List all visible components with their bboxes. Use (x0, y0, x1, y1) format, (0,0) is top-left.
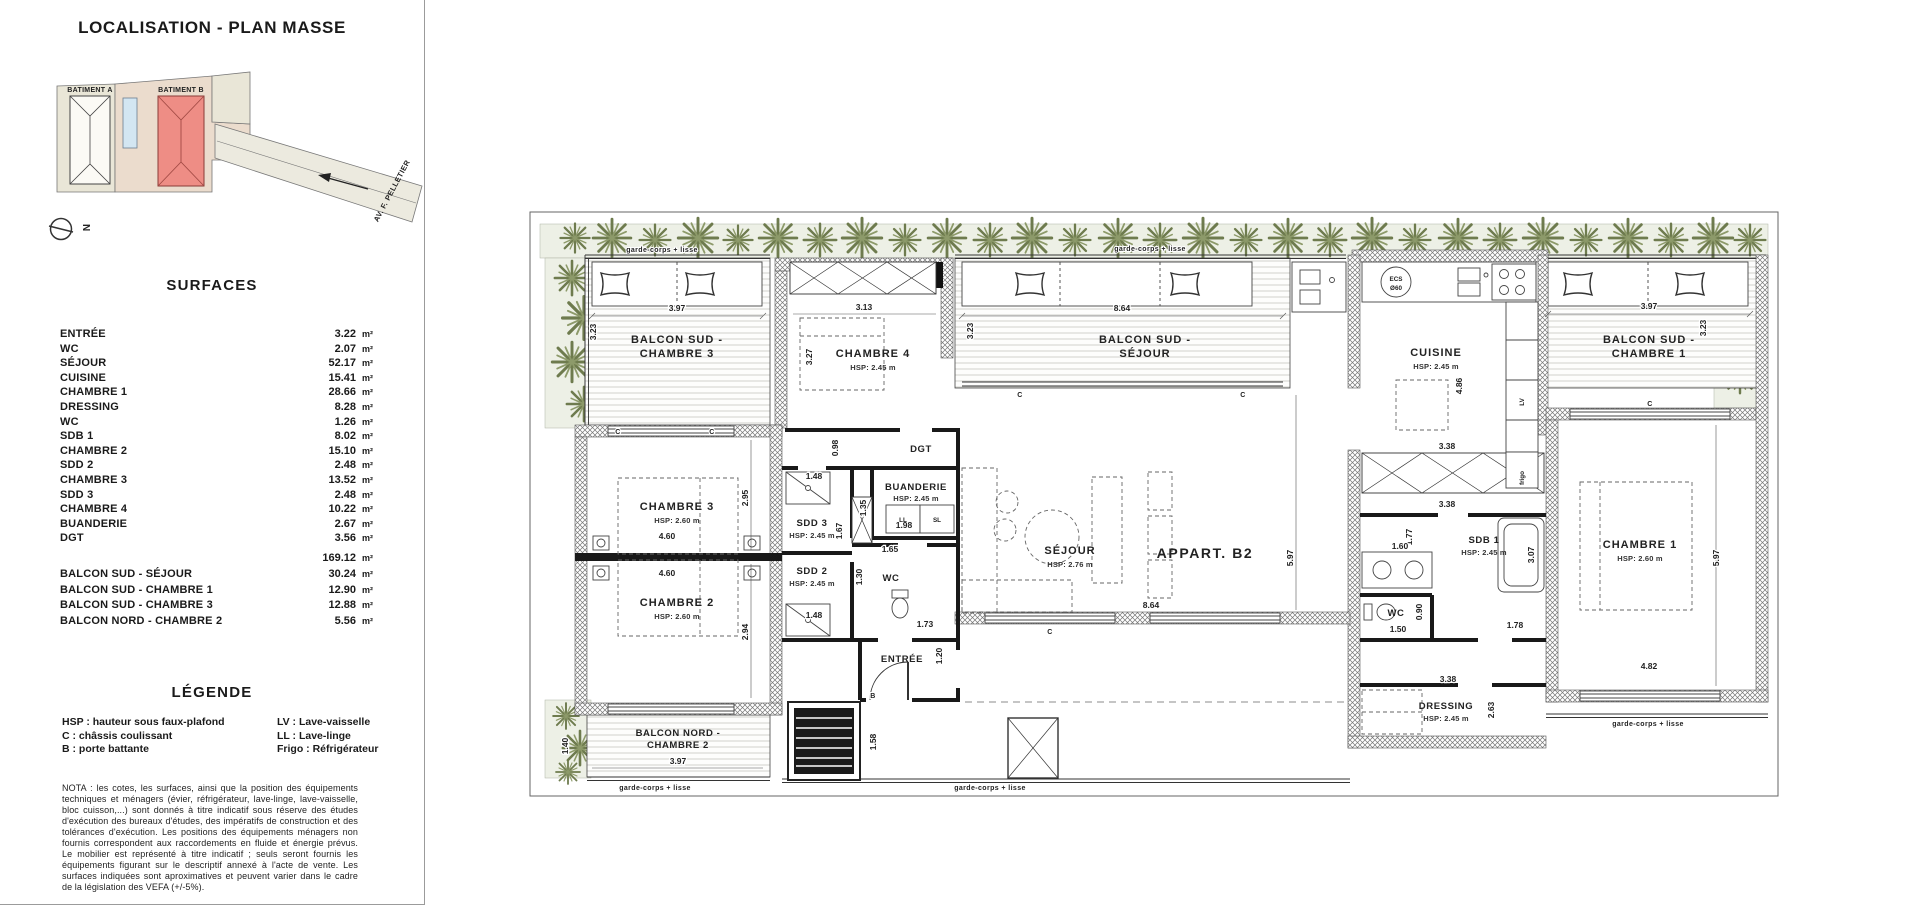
area-unit: m² (356, 614, 388, 630)
room-label: SDD 2 (797, 566, 828, 577)
room-area: 2.48 (312, 488, 356, 503)
dimension: 0.98 (830, 439, 840, 456)
stairwell (788, 702, 860, 780)
table-row: ENTRÉE3.22m² (60, 327, 388, 342)
room-label: CHAMBRE 3 (60, 473, 312, 488)
balcony-label: BALCON SUD - CHAMBRE 3 (60, 598, 312, 614)
room-label: CHAMBRE 2 (647, 740, 709, 751)
area-unit: m² (356, 531, 388, 546)
room-label: BALCON SUD - (631, 334, 723, 346)
railing-label: garde-corps + lisse (626, 247, 698, 254)
room-label: CHAMBRE 3 (640, 501, 714, 513)
legend-item: LV : Lave-vaisselle (277, 716, 379, 730)
balcony-label: BALCON NORD - CHAMBRE 2 (60, 614, 312, 630)
dimension: 3.27 (804, 348, 814, 365)
railing-label: garde-corps + lisse (1612, 721, 1684, 728)
room-label: SÉJOUR (60, 356, 312, 371)
room-label: DGT (60, 531, 312, 546)
sliding-window-mark: C (1017, 392, 1022, 399)
pillow-icon (1016, 273, 1044, 295)
balcony-area: 12.90 (312, 583, 356, 599)
area-unit: m² (356, 458, 388, 473)
dimension: 3.97 (1641, 301, 1658, 311)
room-area: 52.17 (312, 356, 356, 371)
area-unit: m² (356, 567, 388, 583)
area-unit: m² (356, 502, 388, 517)
area-unit: m² (356, 517, 388, 532)
fridge-mark: frigo (1519, 471, 1526, 485)
room-label: BALCON SUD - (1603, 334, 1695, 346)
legend-item: LL : Lave-linge (277, 730, 379, 744)
info-panel: LOCALISATION - PLAN MASSE BATIMENT A BAT… (0, 0, 425, 905)
dimension: 4.86 (1454, 377, 1464, 394)
area-unit: m² (356, 327, 388, 342)
dimension: 3.97 (669, 303, 686, 313)
area-unit: m² (356, 444, 388, 459)
dimension: 4.82 (1641, 661, 1658, 671)
room-label: DRESSING (60, 400, 312, 415)
dimension: 1.48 (806, 471, 823, 481)
table-row: BUANDERIE2.67m² (60, 517, 388, 532)
room-label: SDD 2 (60, 458, 312, 473)
dimension: 1.50 (1390, 624, 1407, 634)
dimension: 3.23 (1698, 319, 1708, 336)
sliding-window-mark: C (1240, 392, 1245, 399)
room-area: 15.41 (312, 371, 356, 386)
apartment-label: APPART. B2 (1157, 545, 1254, 561)
table-row: BALCON NORD - CHAMBRE 25.56m² (60, 614, 388, 630)
room-label: ENTRÉE (60, 327, 312, 342)
dimension: 3.07 (1526, 546, 1536, 563)
building-a (70, 96, 110, 184)
surfaces-table: ENTRÉE3.22m² WC2.07m² SÉJOUR52.17m² CUIS… (60, 327, 388, 566)
table-row: SÉJOUR52.17m² (60, 356, 388, 371)
room-area: 10.22 (312, 502, 356, 517)
room-label: BALCON NORD - (636, 728, 721, 739)
room-hsp: HSP: 2.45 m (1461, 548, 1507, 557)
room-area: 8.02 (312, 429, 356, 444)
room-hsp: HSP: 2.45 m (893, 494, 939, 503)
table-row: SDD 22.48m² (60, 458, 388, 473)
area-unit: m² (356, 598, 388, 614)
legend-item: Frigo : Réfrigérateur (277, 743, 379, 757)
dimension: 3.38 (1439, 499, 1456, 509)
swimming-pool (123, 98, 137, 148)
table-row: CUISINE15.41m² (60, 371, 388, 386)
dimension: 1.40 (560, 737, 570, 754)
room-label: CUISINE (60, 371, 312, 386)
site-map: BATIMENT A BATIMENT B AV. F. PELLETIER N (0, 55, 425, 260)
balconies-table: BALCON SUD - SÉJOUR30.24m² BALCON SUD - … (60, 567, 388, 629)
room-label: WC (882, 573, 899, 584)
dryer-mark: SL (933, 517, 941, 524)
room-area: 2.07 (312, 342, 356, 357)
table-row: SDB 18.02m² (60, 429, 388, 444)
dimension: 8.64 (1114, 303, 1131, 313)
room-area: 3.22 (312, 327, 356, 342)
dimension: 2.63 (1486, 701, 1496, 718)
railing-label: garde-corps + lisse (1114, 246, 1186, 253)
room-label: CHAMBRE 4 (60, 502, 312, 517)
dimension: 3.97 (670, 756, 687, 766)
room-label: CHAMBRE 1 (60, 385, 312, 400)
table-row: BALCON SUD - SÉJOUR30.24m² (60, 567, 388, 583)
dimension: 1.67 (834, 522, 844, 539)
table-row: WC1.26m² (60, 415, 388, 430)
room-hsp: HSP: 2.45 m (850, 363, 896, 372)
legend-left-column: HSP : hauteur sous faux-plafond C : châs… (62, 716, 225, 757)
area-unit: m² (356, 488, 388, 503)
legend-right-column: LV : Lave-vaisselle LL : Lave-linge Frig… (277, 716, 379, 757)
room-hsp: HSP: 2.45 m (789, 531, 835, 540)
area-unit: m² (356, 342, 388, 357)
table-row: SDD 32.48m² (60, 488, 388, 503)
table-row: WC2.07m² (60, 342, 388, 357)
table-row: CHAMBRE 313.52m² (60, 473, 388, 488)
room-label: DGT (910, 444, 932, 455)
room-hsp: HSP: 2.60 m (654, 516, 700, 525)
pillow-icon (601, 273, 629, 295)
elevator (1008, 718, 1058, 778)
sliding-window-mark: C (615, 429, 620, 436)
room-area: 2.48 (312, 458, 356, 473)
legend-heading: LÉGENDE (20, 684, 404, 701)
building-a-label: BATIMENT A (67, 87, 112, 94)
washer-mark: LL (899, 517, 907, 524)
balcony-label: BALCON SUD - CHAMBRE 1 (60, 583, 312, 599)
balcony-area: 5.56 (312, 614, 356, 630)
dimension: 5.97 (1285, 549, 1295, 566)
railing-label: garde-corps + lisse (619, 785, 691, 792)
outdoor-counter-sink (1292, 262, 1346, 312)
table-row: BALCON SUD - CHAMBRE 312.88m² (60, 598, 388, 614)
area-unit: m² (356, 551, 388, 566)
dimension: 3.23 (588, 323, 598, 340)
area-unit: m² (356, 473, 388, 488)
room-hsp: HSP: 2.76 m (1047, 560, 1093, 569)
dimension: 1.30 (854, 568, 864, 585)
pillow-icon (1171, 273, 1199, 295)
room-label: WC (1387, 608, 1404, 619)
table-row: BALCON SUD - CHAMBRE 112.90m² (60, 583, 388, 599)
area-unit: m² (356, 371, 388, 386)
area-unit: m² (356, 400, 388, 415)
table-total-row: 169.12m² (60, 551, 388, 566)
room-label: BUANDERIE (885, 482, 947, 493)
room-label: WC (60, 415, 312, 430)
legend-item: B : porte battante (62, 743, 225, 757)
nota-disclaimer: NOTA : les cotes, les surfaces, ainsi qu… (62, 783, 358, 893)
dimension: 1.73 (917, 619, 934, 629)
dimension: 8.64 (1143, 600, 1160, 610)
room-label: SDB 1 (60, 429, 312, 444)
room-label: SÉJOUR (1044, 544, 1095, 557)
room-label: BALCON SUD - (1099, 334, 1191, 346)
area-unit: m² (356, 583, 388, 599)
pillow-icon (1676, 273, 1704, 295)
building-b-highlighted (158, 96, 204, 186)
dimension: 1.35 (858, 499, 868, 516)
room-label: CHAMBRE 2 (640, 597, 714, 609)
area-unit: m² (356, 429, 388, 444)
dimension: 2.94 (740, 623, 750, 640)
street-road (215, 124, 422, 222)
table-row: DGT3.56m² (60, 531, 388, 546)
water-heater-mark: Ø60 (1390, 285, 1402, 292)
legend-item: HSP : hauteur sous faux-plafond (62, 716, 225, 730)
dimension: 5.97 (1711, 549, 1721, 566)
room-label: DRESSING (1419, 701, 1473, 712)
balcony-label: BALCON SUD - SÉJOUR (60, 567, 312, 583)
room-label: SÉJOUR (1119, 347, 1170, 360)
room-label: ENTRÉE (881, 654, 923, 665)
dimension: 1.58 (868, 733, 878, 750)
room-hsp: HSP: 2.45 m (1413, 362, 1459, 371)
room-label: SDD 3 (60, 488, 312, 503)
dimension: 1.48 (806, 610, 823, 620)
dimension: 1.65 (882, 544, 899, 554)
sliding-window-mark: C (1647, 401, 1652, 408)
floor-plan: BALCON SUD - CHAMBRE 3 BALCON SUD - SÉJO… (430, 0, 1920, 913)
pillow-icon (1564, 273, 1592, 295)
north-arrow-icon: N (49, 219, 91, 240)
north-label: N (80, 224, 91, 231)
dimension: 4.60 (659, 531, 676, 541)
table-row: CHAMBRE 410.22m² (60, 502, 388, 517)
area-unit: m² (356, 415, 388, 430)
room-label: CHAMBRE 4 (836, 348, 910, 360)
dimension: 1.60 (1392, 541, 1409, 551)
room-hsp: HSP: 2.45 m (1423, 714, 1469, 723)
balcony-area: 30.24 (312, 567, 356, 583)
room-label: SDD 3 (797, 518, 828, 529)
table-row: DRESSING8.28m² (60, 400, 388, 415)
room-label: BUANDERIE (60, 517, 312, 532)
room-label: CUISINE (1410, 347, 1462, 359)
room-area: 13.52 (312, 473, 356, 488)
room-area: 3.56 (312, 531, 356, 546)
balcony-area: 12.88 (312, 598, 356, 614)
sliding-window-mark: C (709, 429, 714, 436)
room-area: 1.26 (312, 415, 356, 430)
pillow-icon (686, 273, 714, 295)
water-heater-mark: ECS (1390, 276, 1403, 283)
total-area: 169.12 (312, 551, 356, 566)
legend-item: C : châssis coulissant (62, 730, 225, 744)
room-area: 15.10 (312, 444, 356, 459)
area-unit: m² (356, 356, 388, 371)
area-unit: m² (356, 385, 388, 400)
page-title: LOCALISATION - PLAN MASSE (20, 18, 404, 38)
dimension: 1.78 (1507, 620, 1524, 630)
dimension: 4.60 (659, 568, 676, 578)
building-b-label: BATIMENT B (158, 87, 204, 94)
dimension: 3.38 (1439, 441, 1456, 451)
swing-door-mark: B (870, 693, 875, 700)
table-row: CHAMBRE 215.10m² (60, 444, 388, 459)
room-label: CHAMBRE 3 (640, 348, 714, 360)
room-hsp: HSP: 2.60 m (1617, 554, 1663, 563)
room-hsp: HSP: 2.45 m (789, 579, 835, 588)
room-label: CHAMBRE 2 (60, 444, 312, 459)
room-label: SDB 1 (1469, 535, 1500, 546)
surfaces-heading: SURFACES (20, 277, 404, 294)
railing-label: garde-corps + lisse (954, 785, 1026, 792)
room-label: CHAMBRE 1 (1603, 539, 1677, 551)
dishwasher-mark: LV (1519, 397, 1526, 405)
room-area: 2.67 (312, 517, 356, 532)
room-label: WC (60, 342, 312, 357)
dimension: 0.90 (1414, 603, 1424, 620)
dimension: 3.23 (965, 322, 975, 339)
dimension: 2.95 (740, 489, 750, 506)
dimension: 3.13 (856, 302, 873, 312)
room-hsp: HSP: 2.60 m (654, 612, 700, 621)
room-label: CHAMBRE 1 (1612, 348, 1686, 360)
room-area: 8.28 (312, 400, 356, 415)
sliding-window-mark: C (1047, 629, 1052, 636)
dimension: 3.38 (1440, 674, 1457, 684)
room-area: 28.66 (312, 385, 356, 400)
table-row: CHAMBRE 128.66m² (60, 385, 388, 400)
dimension: 1.20 (934, 647, 944, 664)
